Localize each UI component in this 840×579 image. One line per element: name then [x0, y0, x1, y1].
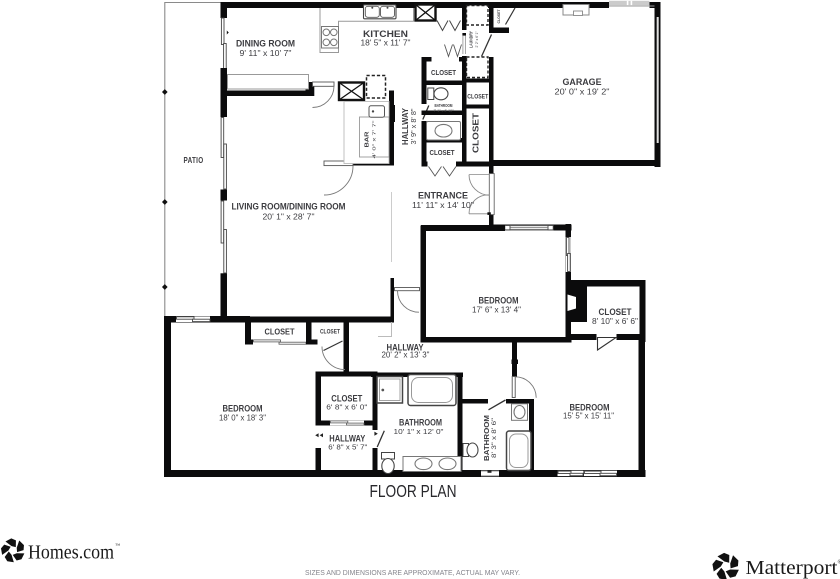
svg-text:LIVING ROOM/DINING ROOM: LIVING ROOM/DINING ROOM: [232, 202, 346, 212]
svg-text:2' 2" x 6' 1": 2' 2" x 6' 1": [475, 31, 479, 48]
svg-text:CLOSET: CLOSET: [265, 328, 295, 337]
svg-text:18' 5" x 11' 7": 18' 5" x 11' 7": [361, 39, 411, 48]
svg-text:15' 5" x 15' 11": 15' 5" x 15' 11": [563, 412, 614, 421]
svg-text:™: ™: [115, 543, 120, 549]
svg-text:11' 11" x 14' 10": 11' 11" x 14' 10": [412, 201, 474, 210]
svg-text:20' 0" x 19' 2": 20' 0" x 19' 2": [555, 88, 610, 97]
svg-text:10' 1" x 12' 0": 10' 1" x 12' 0": [394, 427, 444, 436]
svg-text:CLOSET: CLOSET: [467, 94, 488, 101]
svg-text:CLOSET: CLOSET: [431, 68, 456, 77]
svg-text:18' 0" x 18' 3": 18' 0" x 18' 3": [219, 414, 266, 423]
svg-text:4' 0" x 7' 7": 4' 0" x 7' 7": [371, 120, 377, 158]
svg-text:17' 6" x 13' 4": 17' 6" x 13' 4": [472, 306, 521, 315]
svg-text:9' 11" x 10' 7": 9' 11" x 10' 7": [240, 49, 292, 58]
svg-text:BAR: BAR: [364, 131, 370, 147]
svg-text:LAUNDRY: LAUNDRY: [469, 31, 474, 48]
svg-text:CLOSET: CLOSET: [599, 307, 632, 317]
svg-text:BEDROOM: BEDROOM: [479, 296, 519, 306]
svg-text:Homes.com: Homes.com: [28, 542, 114, 564]
svg-text:6' 8" x 5' 7": 6' 8" x 5' 7": [328, 443, 367, 452]
svg-text:CLOSET: CLOSET: [472, 113, 481, 153]
svg-text:CLOSET: CLOSET: [430, 148, 455, 157]
svg-text:BEDROOM: BEDROOM: [223, 404, 263, 414]
svg-text:GARAGE: GARAGE: [563, 77, 602, 87]
svg-text:7' 1" x 6' 10": 7' 1" x 6' 10": [434, 109, 455, 113]
svg-text:DINING ROOM: DINING ROOM: [236, 39, 295, 49]
svg-text:PATIO: PATIO: [184, 156, 204, 165]
svg-text:Matterport: Matterport: [746, 558, 839, 579]
svg-text:20' 2" x 13' 3": 20' 2" x 13' 3": [382, 351, 430, 360]
svg-text:ENTRANCE: ENTRANCE: [418, 191, 468, 201]
svg-text:FLOOR PLAN: FLOOR PLAN: [370, 481, 457, 501]
svg-text:BATHROOM: BATHROOM: [399, 418, 442, 428]
svg-text:3' 9" x 8' 8": 3' 9" x 8' 8": [409, 108, 418, 144]
svg-text:SIZES AND DIMENSIONS ARE APPRO: SIZES AND DIMENSIONS ARE APPROXIMATE, AC…: [305, 568, 520, 577]
svg-text:20' 1" x 28' 7": 20' 1" x 28' 7": [263, 213, 315, 222]
svg-text:CLOSET: CLOSET: [320, 329, 340, 336]
svg-text:BATHROOM: BATHROOM: [435, 103, 453, 108]
svg-text:8' 10" x 6' 6": 8' 10" x 6' 6": [592, 317, 638, 326]
svg-text:KITCHEN: KITCHEN: [363, 29, 408, 39]
svg-text:8' 3" x 8' 6": 8' 3" x 8' 6": [491, 418, 498, 458]
svg-text:CLOSET: CLOSET: [497, 9, 501, 24]
svg-text:6' 8" x 6' 0": 6' 8" x 6' 0": [326, 403, 367, 412]
